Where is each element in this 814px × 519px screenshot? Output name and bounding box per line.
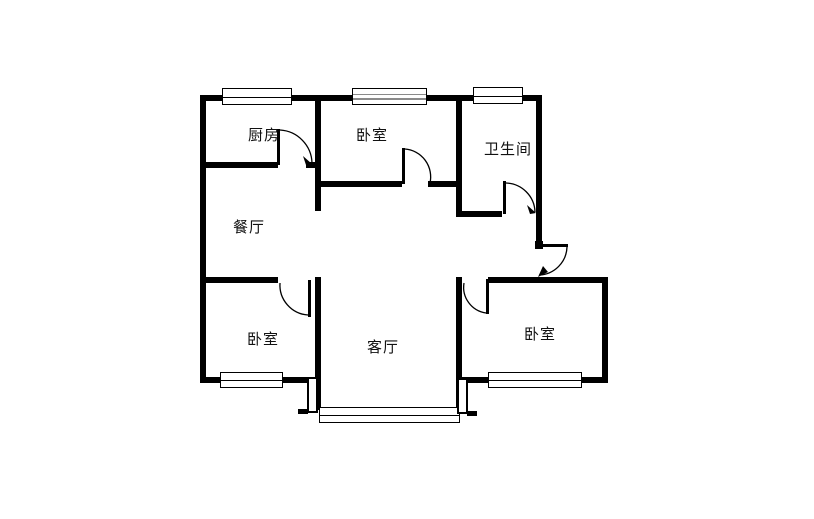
bedroomleft-door-arc [280,283,308,315]
room-label-bedroom-right: 卧室 [524,326,556,342]
bedroomtop-door-arc [405,149,431,183]
floorplan-canvas: 厨房 卧室 卫生间 餐厅 卧室 客厅 卧室 [0,0,814,519]
room-label-kitchen: 厨房 [248,127,280,143]
room-label-bedroom-top: 卧室 [356,127,388,143]
kitchen-door-arrowhead [303,156,312,165]
room-label-bathroom: 卫生间 [484,141,532,157]
entry-door-arrowhead [538,266,548,277]
room-label-living-room: 客厅 [367,339,399,355]
room-label-dining-room: 餐厅 [233,219,265,235]
kitchen-door-arc [280,130,312,163]
bathroom-door-arc [506,183,535,212]
room-label-bedroom-left: 卧室 [247,331,279,347]
bedroomright-door-arc [464,283,486,313]
door-swing-layer [0,0,814,519]
